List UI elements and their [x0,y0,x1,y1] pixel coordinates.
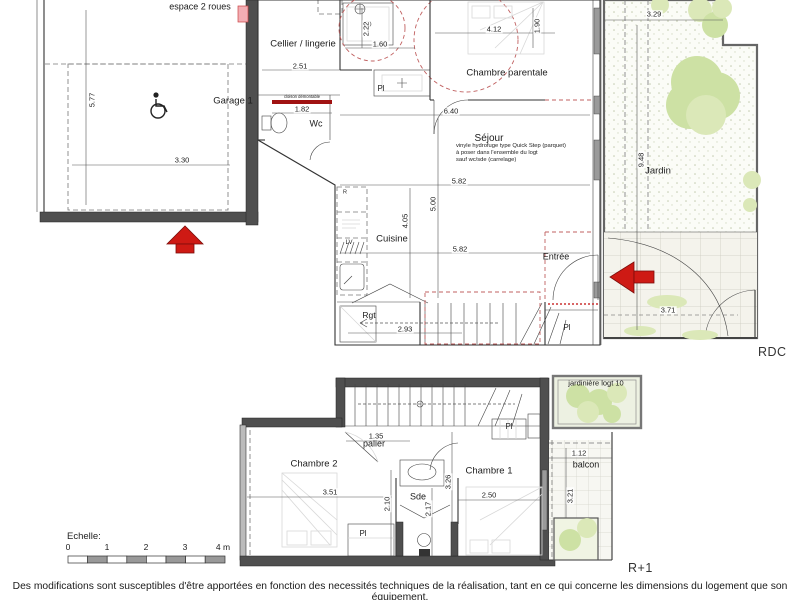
bed-chambre1 [466,487,542,555]
marker-pink [238,6,248,22]
room-label: balcon [573,461,600,470]
room-label: LV [346,240,353,246]
room-label: Pl [359,530,366,538]
sejour-finish-note: vinyle hydrofuge type Quick Step (parque… [456,143,606,164]
dimension-label: 2.10 [383,496,391,513]
room-label: Wc [310,120,323,129]
room-label: Garage 1 [213,96,253,106]
dimension-label: 5.82 [451,177,468,185]
room-label: palier [363,440,385,449]
dimension-label: 1.12 [571,449,588,457]
room-label: cloison démontable [284,95,320,99]
dimension-label: 6.40 [443,107,460,115]
dimension-label: 3.26 [444,474,452,491]
scale-label: Echelle: [67,531,101,542]
dimension-label: 3.21 [566,488,574,505]
dimension-label: 2.17 [424,501,432,518]
dimension-label: 4.12 [486,25,503,33]
scale-tick: 1 [105,543,110,552]
stairs-r1 [345,384,540,426]
room-label: Pl [377,85,384,93]
scale-tick: 3 [183,543,188,552]
scale-bar [68,556,225,563]
dimension-label: 2.50 [481,491,498,499]
dimension-label: 3.51 [322,488,339,496]
closet-r1-bottom [348,524,394,556]
room-label: Chambre parentale [466,68,547,78]
room-label: Pl [563,324,570,332]
rdc-unit [258,0,601,345]
dimension-label: 2.22 [362,21,370,38]
room-label: Chambre 2 [291,459,338,469]
room-label: espace 2 roues [169,3,231,12]
closet-r1-top [492,414,540,439]
r1-unit [240,376,641,566]
dimension-label: 9.48 [637,152,645,169]
scale-tick: 2 [144,543,149,552]
dimension-label: 4.05 [401,213,409,230]
floor-plan-drawing [0,0,800,600]
stairs-rdc [352,284,566,344]
room-label: jardinière logt 10 [568,379,623,387]
room-label: Cuisine [376,234,408,244]
sink-icon [355,4,365,14]
room-label: Jardin [645,166,671,176]
dimension-label: 3.29 [646,10,663,18]
wheelchair-icon [151,92,167,118]
bed-chambre2 [282,473,337,547]
room-label: R [343,190,347,196]
room-label: Chambre 1 [466,466,513,476]
toilet-icon [262,113,287,133]
floor-label-r1: R+1 [628,561,653,575]
dimension-label: 1.60 [372,40,389,48]
dimension-label: 5.00 [429,196,437,213]
room-label: Entrée [543,253,570,262]
floor-label-rdc: RDC [758,345,787,359]
room-label: Rgt [362,311,375,320]
dimension-label: 5.77 [88,92,96,109]
scale-tick: 0 [66,543,71,552]
dimension-label: 1.82 [294,105,311,113]
room-label: Séjour [475,134,504,144]
floor-plan-document: vinyle hydrofuge type Quick Step (parque… [0,0,800,600]
disclaimer-text: Des modifications sont susceptibles d'êt… [0,581,800,600]
dimension-label: 2.51 [292,62,309,70]
room-label: Cellier / lingerie [270,39,335,49]
dimension-label: 2.93 [397,325,414,333]
room-label: Pl [505,423,512,431]
dimension-label: 3.30 [174,156,191,164]
dimension-label: 1.90 [533,18,541,35]
dimension-label: 3.71 [660,306,677,314]
scale-tick: 4 m [216,543,230,552]
dimension-label: 1.35 [368,432,385,440]
garage-entry-arrow [167,226,203,253]
dimension-label: 5.82 [452,245,469,253]
